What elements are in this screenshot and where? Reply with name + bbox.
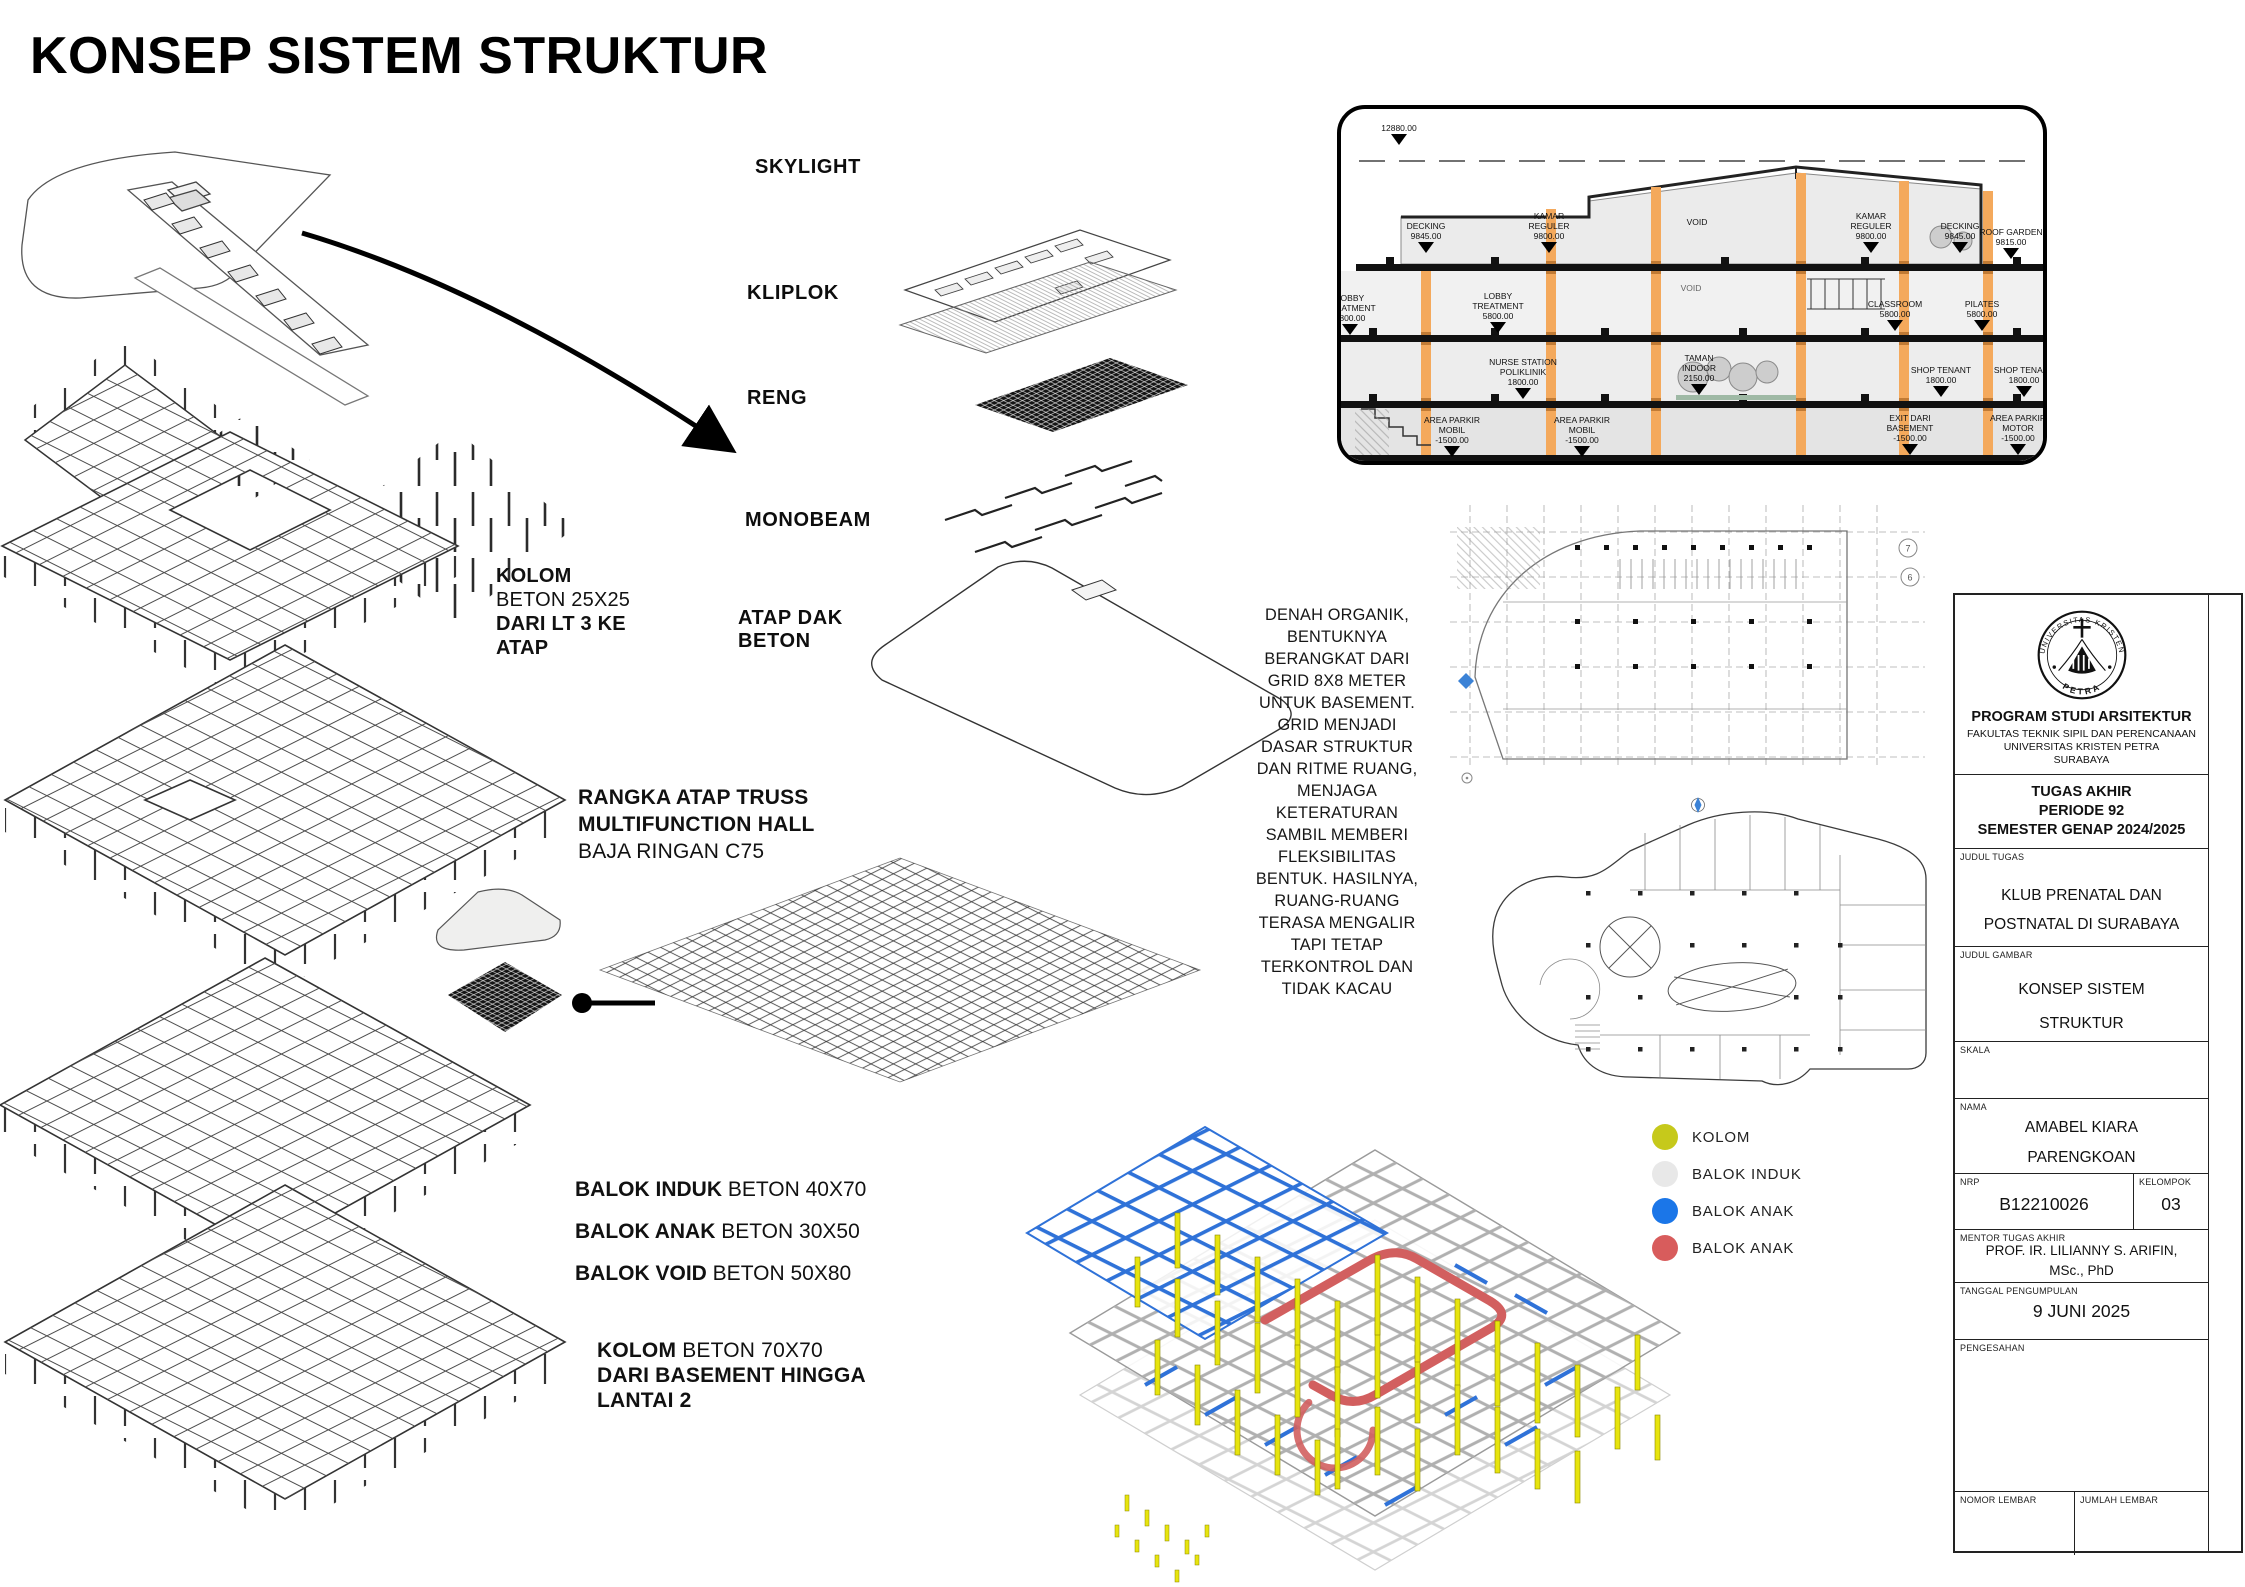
title-block-skala: SKALA (1955, 1042, 2208, 1099)
legend-item-kolom: KOLOM (1652, 1124, 1802, 1150)
mentor-value: PROF. IR. LILIANNY S. ARIFIN, MSc., PhD (1955, 1241, 2208, 1281)
kolom-rest: BETON 70X70 (676, 1339, 823, 1362)
room-label: AREA PARKIR MOBIL -1500.00 (1415, 415, 1489, 465)
structure-legend: KOLOM BALOK INDUK BALOK ANAK BALOK ANAK (1652, 1124, 1802, 1272)
note-line: LANTAI 2 (597, 1388, 866, 1413)
kelompok-cell: KELOMPOK 03 (2134, 1174, 2208, 1229)
room-label: PILATES 5800.00 (1953, 299, 2011, 339)
field-label: NOMOR LEMBAR (1960, 1495, 2036, 1505)
title-block: UNIVERSITAS KRISTEN PETRA PROGRAM STUDI … (1953, 593, 2243, 1553)
note-balok: BALOK INDUK BETON 40X70 BALOK ANAK BETON… (575, 1178, 866, 1304)
elevation-label: 12880.00 (1363, 123, 1435, 153)
room-label: SHOP TENANT 1800.00 (1903, 365, 1979, 405)
legend-item-balok-induk: BALOK INDUK (1652, 1161, 1802, 1187)
field-label: JUMLAH LEMBAR (2080, 1495, 2158, 1505)
title-block-judul-tugas: JUDUL TUGAS KLUB PRENATAL DAN POSTNATAL … (1955, 849, 2208, 947)
title-block-periode: TUGAS AKHIR PERIODE 92 SEMESTER GENAP 20… (1955, 775, 2208, 849)
note-line: ATAP (496, 636, 630, 660)
fakultas: FAKULTAS TEKNIK SIPIL DAN PERENCANAAN (1955, 728, 2208, 741)
note-line: DARI LT 3 KE (496, 612, 630, 636)
petra-university-logo: UNIVERSITAS KRISTEN PETRA (2028, 603, 2136, 707)
legend-label: KOLOM (1692, 1129, 1750, 1146)
note-line: KOLOM BETON 70X70 (597, 1338, 866, 1363)
program-studi: PROGRAM STUDI ARSITEKTUR (1955, 709, 2208, 725)
field-label: TANGGAL PENGUMPULAN (1960, 1286, 2078, 1296)
grid-marker-icon (1458, 673, 1474, 689)
room-label: VOID (1663, 283, 1719, 293)
note-line: BETON 25X25 (496, 588, 630, 612)
room-label: LOBBY TREATMENT 5800.00 (1337, 293, 1385, 343)
room-label: AREA PARKIR MOBIL -1500.00 (1545, 415, 1619, 465)
structure-3d-model (1025, 1085, 1735, 1585)
room-label: CLASSROOM 5800.00 (1855, 299, 1935, 339)
room-label: DECKING 9845.00 (1393, 221, 1459, 261)
truss-patch-dark (448, 962, 562, 1032)
legend-label: BALOK ANAK (1692, 1203, 1794, 1220)
nrp-cell: NRP B12210026 (1955, 1174, 2134, 1229)
concept-paragraph: DENAH ORGANIK, BENTUKNYA BERANGKAT DARI … (1228, 604, 1446, 1000)
room-label: ROOF GARDEN 9815.00 (1977, 227, 2045, 267)
roof-skylight-drawing (22, 152, 368, 405)
balok-rest: BETON 40X70 (722, 1178, 866, 1201)
legend-label: BALOK INDUK (1692, 1166, 1802, 1183)
room-label: VOID (1669, 217, 1725, 227)
field-label: SKALA (1960, 1045, 1990, 1055)
truss-callout (572, 993, 655, 1013)
note-line: RANGKA ATAP TRUSS (578, 784, 815, 811)
judul-gambar-value: KONSEP SISTEM STRUKTUR (1955, 973, 2208, 1041)
title-block-nrp-kelompok: NRP B12210026 KELOMPOK 03 (1955, 1174, 2208, 1230)
building-section: 12880.00 DECKING 9845.00 KAMAR REGULER 9… (1337, 105, 2047, 465)
note-line: BAJA RINGAN C75 (578, 838, 815, 865)
presentation-board: KONSEP SISTEM STRUKTUR (0, 0, 2245, 1587)
room-label: NURSE STATION POLIKLINIK 1800.00 (1477, 357, 1569, 407)
svg-text:7: 7 (1905, 544, 1910, 554)
title-block-nama: NAMA AMABEL KIARA PARENGKOAN (1955, 1099, 2208, 1174)
room-label: EXIT DARI BASEMENT -1500.00 (1873, 413, 1947, 463)
balok-bold: BALOK VOID (575, 1262, 707, 1285)
note-balok-induk: BALOK INDUK BETON 40X70 (575, 1178, 866, 1202)
title-block-tanggal: TANGGAL PENGUMPULAN 9 JUNI 2025 (1955, 1283, 2208, 1340)
hall-slab-patch (436, 889, 560, 950)
label-monobeam: MONOBEAM (745, 509, 871, 532)
legend-item-balok-anak-red: BALOK ANAK (1652, 1235, 1802, 1261)
note-balok-void: BALOK VOID BETON 50X80 (575, 1262, 866, 1286)
note-kolom-atas: KOLOM BETON 25X25 DARI LT 3 KE ATAP (496, 564, 630, 660)
monobeam-drawing (945, 461, 1162, 552)
arrow-roof-to-layers (302, 233, 720, 442)
floor-plate-basement (5, 1185, 565, 1520)
svg-text:6: 6 (1907, 573, 1912, 583)
balok-induk-color-dot-icon (1652, 1161, 1678, 1187)
basement-grid-plan: 7 6 (1445, 497, 1950, 785)
title-block-lembar: NOMOR LEMBAR JUMLAH LEMBAR (1955, 1492, 2208, 1555)
note-kolom-bawah: KOLOM BETON 70X70 DARI BASEMENT HINGGA L… (597, 1338, 866, 1413)
grid-bubbles: 7 6 (1899, 539, 1919, 586)
title-block-pengesahan: PENGESAHAN (1955, 1340, 2208, 1492)
note-line: KOLOM (496, 564, 630, 588)
title-block-mentor: MENTOR TUGAS AKHIR PROF. IR. LILIANNY S.… (1955, 1230, 2208, 1283)
field-label: NRP (1960, 1177, 1980, 1187)
kolom-stubs (1115, 1495, 1209, 1582)
tanggal-value: 9 JUNI 2025 (1955, 1301, 2208, 1322)
field-label: PENGESAHAN (1960, 1343, 2025, 1353)
balok-rest: BETON 50X80 (707, 1262, 851, 1285)
compass-icon (1692, 797, 1705, 813)
field-label: JUDUL TUGAS (1960, 852, 2024, 862)
truss-grid-drawing (600, 858, 1200, 1082)
label-reng: RENG (747, 387, 807, 410)
room-label: SHOP TENANT 1800.00 (1989, 365, 2047, 405)
field-label: KELOMPOK (2139, 1177, 2191, 1187)
kolom-color-dot-icon (1652, 1124, 1678, 1150)
kolom-bold: KOLOM (597, 1339, 676, 1362)
title-block-column: UNIVERSITAS KRISTEN PETRA PROGRAM STUDI … (1955, 595, 2209, 1551)
balok-anak-red-color-dot-icon (1652, 1235, 1678, 1261)
note-balok-anak: BALOK ANAK BETON 30X50 (575, 1220, 866, 1244)
field-label: JUDUL GAMBAR (1960, 950, 2033, 960)
balok-bold: BALOK ANAK (575, 1220, 715, 1243)
balok-rest: BETON 30X50 (715, 1220, 859, 1243)
page-title: KONSEP SISTEM STRUKTUR (30, 26, 768, 86)
kota: SURABAYA (1955, 754, 2208, 767)
room-label: KAMAR REGULER 9800.00 (1839, 211, 1903, 261)
note-line: DARI BASEMENT HINGGA (597, 1363, 866, 1388)
organic-floor-plan (1480, 795, 1940, 1105)
nrp-value: B12210026 (1955, 1194, 2133, 1215)
balok-anak-blue-color-dot-icon (1652, 1198, 1678, 1224)
note-line: MULTIFUNCTION HALL (578, 811, 815, 838)
room-label: KAMAR REGULER 9800.00 (1517, 211, 1581, 261)
kelompok-value: 03 (2134, 1194, 2208, 1215)
jumlah-lembar-cell: JUMLAH LEMBAR (2075, 1492, 2208, 1555)
periode-text: TUGAS AKHIR PERIODE 92 SEMESTER GENAP 20… (1955, 783, 2208, 840)
universitas: UNIVERSITAS KRISTEN PETRA (1955, 741, 2208, 754)
room-label: LOBBY TREATMENT 5800.00 (1459, 291, 1537, 341)
judul-tugas-value: KLUB PRENATAL DAN POSTNATAL DI SURABAYA (1955, 881, 2208, 939)
room-label: AREA PARKIR MOTOR -1500.00 (1983, 413, 2047, 463)
nama-value: AMABEL KIARA PARENGKOAN (1955, 1113, 2208, 1173)
label-kliplok: KLIPLOK (747, 282, 839, 305)
title-block-header: UNIVERSITAS KRISTEN PETRA PROGRAM STUDI … (1955, 595, 2208, 775)
room-label: TAMAN INDOOR 2150.00 (1669, 353, 1729, 403)
field-label: NAMA (1960, 1102, 1987, 1112)
balok-bold: BALOK INDUK (575, 1178, 722, 1201)
legend-item-balok-anak-blue: BALOK ANAK (1652, 1198, 1802, 1224)
title-block-judul-gambar: JUDUL GAMBAR KONSEP SISTEM STRUKTUR (1955, 947, 2208, 1042)
legend-label: BALOK ANAK (1692, 1240, 1794, 1257)
label-atap-dak-beton: ATAP DAK BETON (738, 607, 843, 653)
note-rangka-atap: RANGKA ATAP TRUSS MULTIFUNCTION HALL BAJ… (578, 784, 815, 865)
label-skylight: SKYLIGHT (755, 156, 861, 179)
nomor-lembar-cell: NOMOR LEMBAR (1955, 1492, 2075, 1555)
reng-panel-drawing (975, 358, 1188, 432)
